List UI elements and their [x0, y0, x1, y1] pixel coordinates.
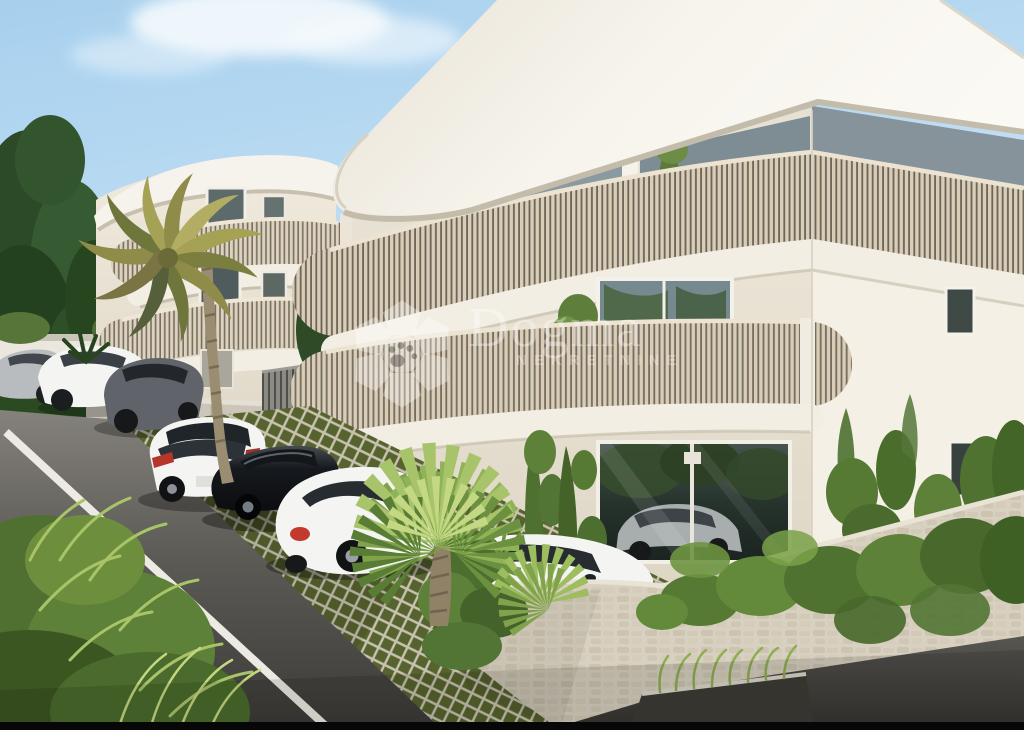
bottom-letterbox-bar: [0, 722, 1024, 730]
architectural-render: Dogma NEKRETNINE: [0, 0, 1024, 730]
vent-box: [684, 452, 701, 464]
render-scene: [0, 0, 1024, 730]
window: [946, 288, 974, 334]
